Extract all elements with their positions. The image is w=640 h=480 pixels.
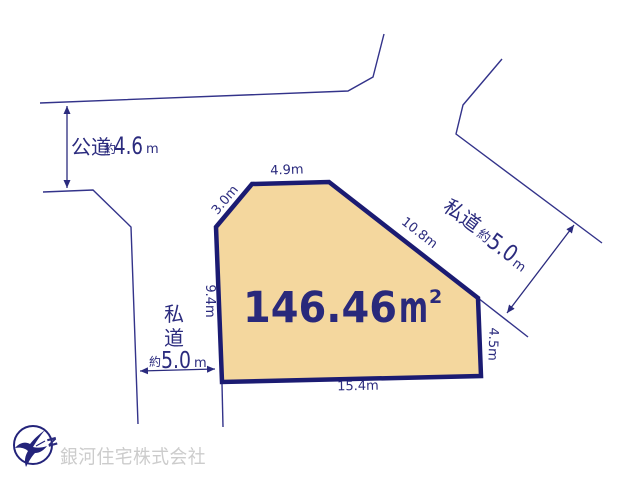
- right-private-road-name: 私道: [439, 194, 485, 237]
- left-private-road-width-value: 5.0: [161, 348, 191, 374]
- compass-north-letter: N: [44, 435, 60, 448]
- edge-label-bottom: 15.4m: [337, 379, 379, 395]
- edge-label-left: 9.4m: [202, 284, 217, 317]
- public-road-unit: m: [146, 142, 159, 157]
- site-plan-drawing: 146.46 m 2 3.0m 4.9m 10.8m 9.4m 4.5m 15.…: [0, 0, 640, 480]
- edge-label-top: 4.9m: [270, 162, 304, 178]
- public-road-width-value: 4.6: [114, 132, 143, 160]
- left-private-road-name-1: 私: [164, 302, 184, 326]
- area-unit: m: [399, 283, 428, 333]
- left-private-road-approx: 約: [149, 354, 161, 369]
- area-superscript: 2: [429, 286, 442, 308]
- left-road-edge-line: [43, 190, 138, 424]
- edge-label-lower-right: 4.5m: [484, 327, 500, 361]
- compass-icon: N: [14, 426, 60, 467]
- compass-needle-line: [36, 441, 45, 446]
- company-watermark: 銀河住宅株式会社: [60, 446, 206, 468]
- public-road-top-edge-line: [40, 34, 384, 103]
- area-label: 146.46 m 2: [243, 283, 442, 333]
- left-private-road-name-2: 道: [164, 326, 184, 350]
- site-plan-page: 146.46 m 2 3.0m 4.9m 10.8m 9.4m 4.5m 15.…: [0, 0, 640, 480]
- left-private-road-unit: m: [194, 356, 207, 371]
- area-value: 146.46: [243, 283, 397, 333]
- public-road-dimension: 公道 約 4.6 m: [67, 106, 159, 188]
- plot-corner-extension-line: [222, 384, 223, 427]
